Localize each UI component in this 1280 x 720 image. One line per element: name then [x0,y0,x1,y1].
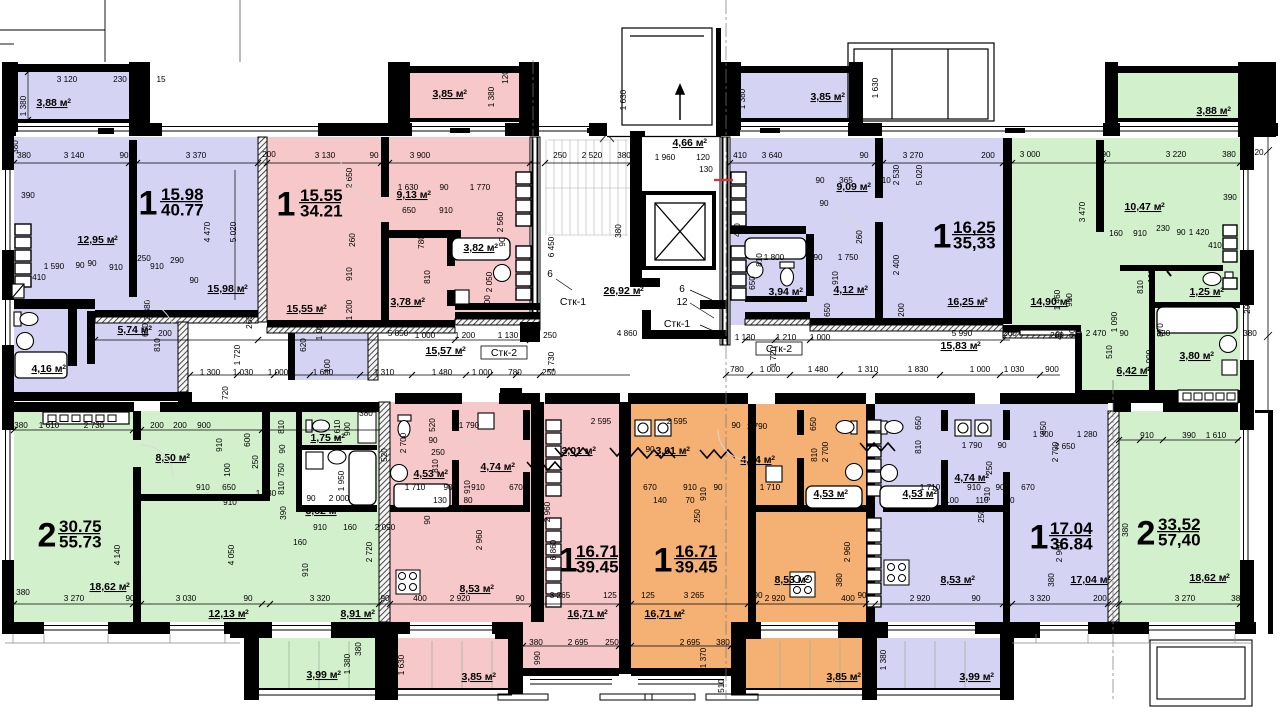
svg-text:3,85 м: 3,85 м [432,88,463,100]
svg-text:1 230: 1 230 [256,489,277,498]
svg-text:810: 810 [277,420,286,434]
svg-text:810: 810 [277,481,286,495]
svg-text:40.77: 40.77 [161,201,204,220]
svg-text:6: 6 [679,284,685,295]
svg-text:2 700: 2 700 [821,441,830,462]
svg-text:1 480: 1 480 [432,368,453,377]
svg-text:4,16 м: 4,16 м [31,363,62,375]
svg-text:810: 810 [423,270,432,284]
svg-text:2: 2 [427,190,431,197]
svg-text:910: 910 [877,176,891,185]
svg-text:2: 2 [463,89,467,96]
svg-text:26,92 м: 26,92 м [604,285,641,297]
svg-text:230: 230 [1156,224,1170,233]
svg-text:5 990: 5 990 [952,329,973,338]
svg-text:250: 250 [251,455,260,469]
svg-text:2: 2 [462,346,466,353]
svg-text:250: 250 [977,509,986,523]
svg-text:Стк-1: Стк-1 [560,296,586,308]
svg-text:910: 910 [109,263,123,272]
svg-text:380: 380 [617,151,631,160]
svg-text:8,53 м: 8,53 м [774,574,805,586]
svg-text:750: 750 [277,463,286,477]
svg-text:2: 2 [977,341,981,348]
svg-text:2 920: 2 920 [910,594,931,603]
svg-text:510: 510 [1105,345,1114,359]
svg-text:410: 410 [1208,241,1222,250]
svg-text:130: 130 [433,496,447,505]
svg-text:200: 200 [173,421,187,430]
svg-text:2 960: 2 960 [543,501,552,522]
svg-text:1 130: 1 130 [735,333,756,342]
svg-text:250: 250 [137,254,151,263]
svg-text:910: 910 [301,563,310,577]
svg-text:2 960: 2 960 [843,541,852,562]
svg-text:3,99 м: 3,99 м [959,671,990,683]
svg-text:670: 670 [1021,483,1035,492]
svg-text:90: 90 [1005,496,1015,505]
svg-text:90: 90 [995,483,1005,492]
svg-text:2: 2 [490,584,494,591]
svg-text:200: 200 [1003,329,1017,338]
svg-text:3,85 м: 3,85 м [461,671,492,683]
svg-text:2: 2 [703,138,707,145]
svg-text:1 610: 1 610 [1206,431,1227,440]
svg-text:1 630: 1 630 [871,77,880,98]
svg-text:380: 380 [1231,594,1245,603]
svg-text:3 000: 3 000 [1020,150,1041,159]
svg-text:2 400: 2 400 [892,254,901,275]
svg-text:650: 650 [914,416,923,430]
svg-text:4 470: 4 470 [203,221,212,242]
svg-text:390: 390 [21,191,35,200]
svg-text:1 750: 1 750 [838,253,859,262]
svg-text:1 460: 1 460 [1053,289,1062,310]
svg-text:3 265: 3 265 [684,591,705,600]
svg-text:390: 390 [1182,431,1196,440]
svg-text:15,55 м: 15,55 м [287,303,324,315]
svg-text:380: 380 [14,421,28,430]
svg-text:100: 100 [945,496,959,505]
svg-text:910: 910 [439,206,453,215]
svg-text:3 270: 3 270 [64,594,85,603]
svg-text:90: 90 [753,591,763,600]
svg-text:12: 12 [676,297,688,308]
svg-text:390: 390 [1223,193,1237,202]
svg-text:1 770: 1 770 [470,183,491,192]
svg-text:910: 910 [215,438,224,452]
svg-text:380: 380 [1121,523,1130,537]
svg-text:3,85 м: 3,85 м [826,671,857,683]
svg-text:810: 810 [153,338,162,352]
svg-text:1: 1 [277,186,296,224]
svg-text:120: 120 [501,70,510,84]
svg-text:1 030: 1 030 [1004,365,1025,374]
svg-text:2 700: 2 700 [1051,441,1060,462]
svg-text:2 000: 2 000 [329,494,350,503]
svg-text:90: 90 [813,253,823,262]
svg-text:410: 410 [733,223,742,237]
svg-text:4 140: 4 140 [113,544,122,565]
svg-text:1 310: 1 310 [858,365,879,374]
svg-text:1 630: 1 630 [398,183,419,192]
svg-text:3 320: 3 320 [310,594,331,603]
svg-text:5 020: 5 020 [915,164,924,185]
svg-text:2: 2 [1220,287,1224,294]
svg-text:125: 125 [641,591,655,600]
svg-text:910: 910 [223,498,237,507]
svg-text:2 530: 2 530 [892,164,901,185]
svg-text:600: 600 [243,433,252,447]
svg-text:380: 380 [359,409,373,418]
svg-text:1 720: 1 720 [233,344,242,365]
svg-text:3 370: 3 370 [186,151,207,160]
svg-text:290: 290 [1243,300,1252,314]
svg-text:810: 810 [755,253,764,267]
svg-text:1 000: 1 000 [970,365,991,374]
svg-text:380: 380 [16,588,30,597]
svg-text:650: 650 [402,206,416,215]
svg-text:1 590: 1 590 [44,262,65,271]
svg-text:230: 230 [113,75,127,84]
svg-text:910: 910 [699,487,708,501]
svg-text:1 630: 1 630 [619,89,628,110]
svg-text:380: 380 [11,140,20,154]
svg-text:100: 100 [1147,269,1156,283]
svg-text:2: 2 [62,364,66,371]
svg-text:3 220: 3 220 [1166,150,1187,159]
svg-text:520: 520 [428,418,437,432]
svg-text:910: 910 [983,487,992,501]
svg-text:34.21: 34.21 [300,202,343,221]
svg-text:200: 200 [262,150,276,159]
svg-text:1 710: 1 710 [920,483,941,492]
svg-text:8,91 м: 8,91 м [340,608,371,620]
svg-text:200: 200 [981,151,995,160]
svg-text:910: 910 [1065,293,1074,307]
svg-text:2: 2 [990,672,994,679]
svg-text:2: 2 [1210,351,1214,358]
svg-text:18,62 м: 18,62 м [90,581,127,593]
svg-text:2 560: 2 560 [496,211,505,232]
svg-text:100: 100 [223,463,232,477]
svg-text:90: 90 [75,261,85,270]
svg-text:910: 910 [463,480,472,494]
svg-text:90: 90 [713,483,723,492]
svg-text:910: 910 [683,483,697,492]
svg-text:1 000: 1 000 [810,333,831,342]
svg-text:3,82 м: 3,82 м [305,505,336,517]
svg-text:15,98 м: 15,98 м [208,283,245,295]
svg-text:2 700: 2 700 [399,432,408,453]
svg-text:90: 90 [306,494,316,503]
svg-text:620: 620 [299,338,308,352]
svg-text:2: 2 [841,92,845,99]
svg-text:2: 2 [245,609,249,616]
svg-text:2: 2 [38,517,57,555]
svg-text:57,40: 57,40 [1158,531,1201,550]
svg-text:10,47 м: 10,47 м [1125,201,1162,213]
svg-text:90: 90 [439,183,449,192]
svg-text:120: 120 [696,153,710,162]
svg-text:250: 250 [553,151,567,160]
svg-text:90: 90 [1101,150,1111,159]
svg-text:260: 260 [855,230,864,244]
svg-text:2: 2 [337,670,341,677]
svg-text:520: 520 [380,448,389,462]
svg-text:2: 2 [984,297,988,304]
svg-text:3 265: 3 265 [550,591,571,600]
svg-text:380: 380 [1243,329,1257,338]
svg-text:2: 2 [492,672,496,679]
svg-text:3,01 м: 3,01 м [655,445,686,457]
svg-text:810: 810 [1136,280,1145,294]
svg-text:8,53 м: 8,53 м [940,574,971,586]
svg-text:90: 90 [498,237,507,247]
svg-text:3 130: 3 130 [315,151,336,160]
svg-text:Стк-1: Стк-1 [664,318,690,330]
svg-text:20: 20 [1254,148,1264,157]
svg-text:90: 90 [533,433,543,442]
svg-text:17,04 м: 17,04 м [1071,574,1108,586]
svg-text:780: 780 [508,368,522,377]
svg-text:3 140: 3 140 [64,151,85,160]
svg-text:910: 910 [1133,229,1147,238]
svg-text:2: 2 [686,446,690,453]
svg-text:5 020: 5 020 [229,221,238,242]
svg-text:1 800: 1 800 [764,253,785,262]
svg-text:2 960: 2 960 [1055,541,1064,562]
svg-text:55.73: 55.73 [59,533,102,552]
svg-text:1 380: 1 380 [879,649,888,670]
svg-text:3 470: 3 470 [1078,201,1087,222]
svg-text:2: 2 [323,304,327,311]
svg-text:670: 670 [509,483,523,492]
svg-text:260: 260 [348,233,357,247]
svg-text:910: 910 [967,483,981,492]
svg-text:390: 390 [279,506,288,520]
svg-text:3,80 м: 3,80 м [1179,350,1210,362]
svg-text:910: 910 [196,483,210,492]
svg-text:780: 780 [730,365,744,374]
svg-text:90: 90 [1176,228,1186,237]
svg-text:650: 650 [809,417,818,431]
svg-text:125: 125 [603,591,617,600]
svg-text:900: 900 [197,421,211,430]
svg-text:910: 910 [150,262,164,271]
svg-text:1,25 м: 1,25 м [1189,286,1220,298]
svg-text:1 950: 1 950 [337,470,346,491]
svg-text:2: 2 [1137,515,1156,553]
svg-text:39.45: 39.45 [675,558,718,577]
svg-text:90: 90 [859,151,869,160]
svg-text:250: 250 [431,448,445,457]
svg-text:670: 670 [643,483,657,492]
svg-text:3,88 м: 3,88 м [1196,105,1227,117]
svg-text:650: 650 [141,323,150,337]
svg-text:1 480: 1 480 [808,365,829,374]
svg-text:2: 2 [114,235,118,242]
svg-text:160: 160 [1109,229,1123,238]
svg-text:90: 90 [515,594,525,603]
svg-text:200: 200 [897,303,906,317]
svg-text:2 695: 2 695 [568,638,589,647]
svg-text:1 710: 1 710 [405,483,426,492]
svg-text:15: 15 [156,75,166,84]
svg-text:650: 650 [222,483,236,492]
svg-text:130: 130 [699,165,713,174]
svg-text:90: 90 [125,594,135,603]
svg-text:14,90 м: 14,90 м [1031,296,1068,308]
svg-text:1 380: 1 380 [19,95,28,116]
svg-text:12,95 м: 12,95 м [78,234,115,246]
svg-text:100: 100 [323,359,332,373]
svg-text:90: 90 [819,199,829,208]
svg-text:1 790: 1 790 [962,441,983,450]
svg-text:1 090: 1 090 [1110,311,1119,332]
svg-text:1 000: 1 000 [315,319,324,340]
svg-text:910: 910 [313,523,327,532]
svg-text:2 090: 2 090 [375,523,396,532]
svg-text:650: 650 [1039,421,1048,435]
svg-text:15,83 м: 15,83 м [941,340,978,352]
svg-text:4 860: 4 860 [617,329,638,338]
svg-text:250: 250 [543,331,557,340]
svg-text:2: 2 [336,506,340,513]
svg-text:4 050: 4 050 [227,544,236,565]
svg-text:1 000: 1 000 [415,331,436,340]
svg-text:870: 870 [1156,323,1165,337]
svg-text:6: 6 [547,269,553,280]
svg-text:290: 290 [170,256,184,265]
svg-text:810: 810 [810,448,819,462]
svg-text:16,25 м: 16,25 м [948,296,985,308]
svg-text:90: 90 [189,276,199,285]
svg-text:250: 250 [693,329,707,338]
svg-text:810: 810 [914,440,923,454]
svg-text:4,53 м: 4,53 м [413,468,444,480]
svg-text:510: 510 [717,679,726,693]
svg-text:6 450: 6 450 [547,236,556,257]
svg-text:2 470: 2 470 [1086,329,1107,338]
svg-text:250: 250 [605,638,619,647]
svg-text:3 640: 3 640 [762,151,783,160]
svg-text:90: 90 [857,591,867,600]
svg-text:2: 2 [67,98,71,105]
svg-text:2: 2 [857,672,861,679]
svg-text:90: 90 [428,436,438,445]
svg-text:1 130: 1 130 [498,331,519,340]
svg-text:3 320: 3 320 [1030,594,1051,603]
svg-text:1 790: 1 790 [459,421,480,430]
svg-text:1 720: 1 720 [769,346,778,367]
svg-text:2: 2 [867,182,871,189]
svg-text:2 960: 2 960 [475,529,484,550]
svg-text:380: 380 [1239,143,1248,157]
svg-text:Стк-2: Стк-2 [491,347,517,359]
svg-text:650: 650 [748,276,757,290]
svg-text:5 850: 5 850 [388,329,409,338]
svg-text:910: 910 [1140,431,1154,440]
svg-text:1 610: 1 610 [39,421,60,430]
svg-text:1 380: 1 380 [738,88,747,109]
svg-text:1 790: 1 790 [747,422,768,431]
svg-text:200: 200 [1093,594,1107,603]
svg-text:1: 1 [139,185,158,223]
svg-text:3 030: 3 030 [176,594,197,603]
svg-text:1 300: 1 300 [200,368,221,377]
svg-text:2: 2 [126,582,130,589]
svg-text:380: 380 [716,638,730,647]
svg-text:2: 2 [371,609,375,616]
svg-text:90: 90 [369,151,379,160]
svg-text:2: 2 [186,453,190,460]
svg-text:2: 2 [244,284,248,291]
svg-text:910: 910 [471,483,485,492]
svg-text:3 900: 3 900 [410,151,431,160]
svg-text:3 270: 3 270 [903,151,924,160]
svg-text:1 200: 1 200 [345,299,354,320]
svg-text:18,62 м: 18,62 м [1190,572,1227,584]
svg-text:1 370: 1 370 [699,647,708,668]
svg-text:2: 2 [971,575,975,582]
svg-text:2: 2 [640,286,644,293]
svg-text:2 595: 2 595 [591,417,612,426]
svg-text:12,13 м: 12,13 м [209,608,246,620]
svg-text:16,71 м: 16,71 м [568,608,605,620]
svg-text:200: 200 [483,295,492,309]
svg-text:2: 2 [1161,202,1165,209]
svg-text:2 520: 2 520 [582,151,603,160]
svg-text:2: 2 [844,489,848,496]
svg-text:3,88 м: 3,88 м [36,97,67,109]
svg-text:35,33: 35,33 [953,234,996,253]
svg-text:2: 2 [421,297,425,304]
svg-text:3 120: 3 120 [57,75,78,84]
svg-text:910: 910 [345,267,354,281]
svg-text:90: 90 [443,483,453,492]
svg-text:15,57 м: 15,57 м [426,345,463,357]
svg-text:380: 380 [835,573,844,587]
svg-text:3 270: 3 270 [1175,594,1196,603]
svg-text:8,50 м: 8,50 м [155,452,186,464]
svg-text:4,74 м: 4,74 м [480,461,511,473]
svg-text:3,82 м: 3,82 м [463,242,494,254]
svg-text:2: 2 [1227,106,1231,113]
svg-text:900: 900 [343,422,352,436]
svg-text:160: 160 [343,523,357,532]
svg-text:380: 380 [614,224,623,238]
svg-text:1 420: 1 420 [1189,228,1210,237]
svg-text:4,53 м: 4,53 м [813,488,844,500]
svg-text:720: 720 [221,386,230,400]
svg-text:140: 140 [653,496,667,505]
svg-text:1 610: 1 610 [333,419,342,440]
svg-text:3,99 м: 3,99 м [306,669,337,681]
svg-text:650: 650 [823,303,832,317]
svg-text:1 210: 1 210 [776,333,797,342]
svg-text:90: 90 [1068,328,1077,338]
svg-text:1 200: 1 200 [455,331,476,340]
svg-text:90: 90 [119,151,129,160]
svg-text:90: 90 [815,176,825,185]
svg-text:2: 2 [1107,575,1111,582]
svg-text:1 380: 1 380 [343,653,352,674]
svg-text:410: 410 [733,151,747,160]
svg-text:380: 380 [530,605,539,619]
svg-text:200: 200 [150,421,164,430]
svg-text:90: 90 [243,594,253,603]
